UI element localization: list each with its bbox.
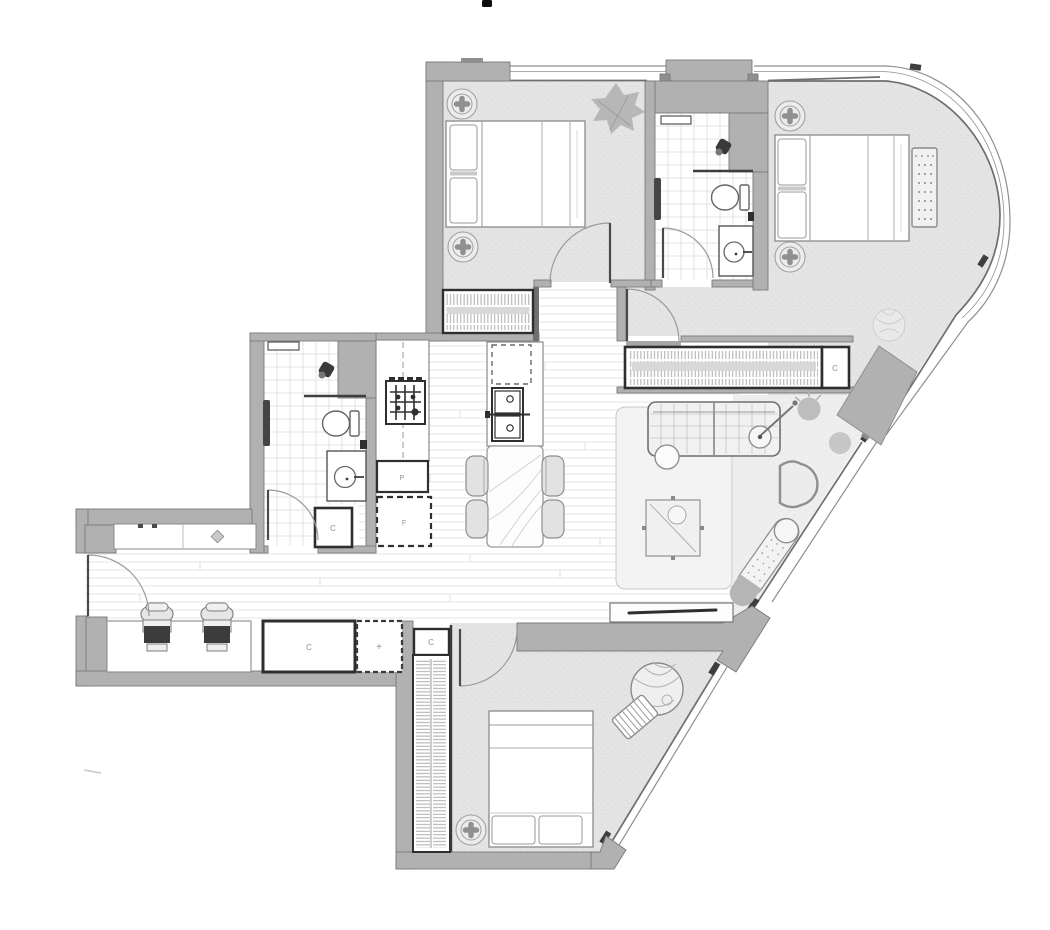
svg-text:C: C [330, 524, 336, 533]
svg-text:C: C [428, 638, 434, 647]
svg-text:F: F [402, 520, 406, 527]
svg-text:C: C [306, 643, 312, 652]
svg-text:P: P [400, 475, 405, 482]
svg-text:+: + [376, 642, 382, 653]
svg-text:C: C [832, 364, 838, 373]
